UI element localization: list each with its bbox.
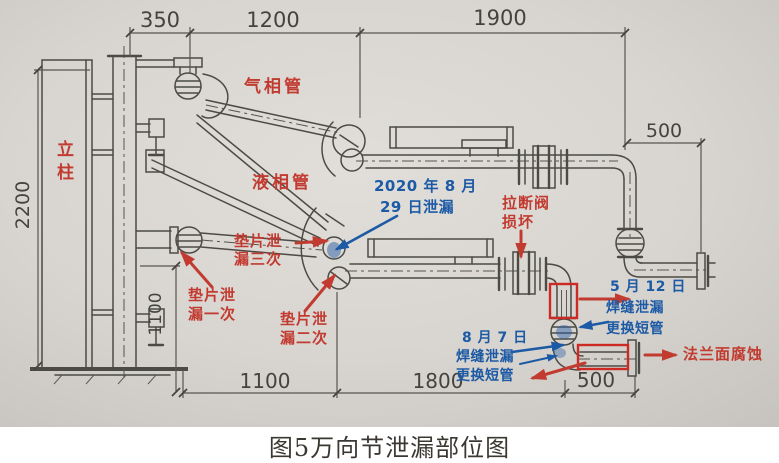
label-liquid-pipe: 液相管 [252,172,312,193]
note-gasket-leak-1x-line2: 漏一次 [188,305,236,323]
leak-spot-mark-2020 [327,242,341,258]
dim-right-500: 500 [646,120,682,142]
dim-top-1200: 1200 [246,8,299,32]
label-gas-pipe: 气相管 [243,76,304,97]
note-may12-line2: 焊缝泄漏 [606,299,664,316]
note-gasket-leak-3x-line1: 垫片泄 [234,232,282,250]
dim-top-1900: 1900 [473,6,526,30]
note-gasket-leak-2x-line2: 漏二次 [280,329,328,347]
note-may12-line1: 5 月 12 日 [610,279,686,295]
note-gasket-leak-2x-line1: 垫片泄 [280,310,328,328]
dim-bottom-500: 500 [577,368,615,392]
note-2020-leak-line2: 29 日泄漏 [380,198,454,216]
note-breakaway-valve-line2: 损坏 [502,213,534,231]
leak-spot-mark-may12 [556,325,572,339]
universal-joint-leak-diagram: 350 1200 1900 500 2200 11 [0,0,779,427]
dim-inner-1100: 1100 [146,292,166,335]
note-breakaway-valve-line1: 拉断阀 [502,194,550,212]
note-may12-line3: 更换短管 [606,320,664,337]
label-column: 立柱 [53,139,74,186]
note-2020-leak-line1: 2020 年 8 月 [374,177,477,195]
note-gasket-leak-3x-line2: 漏三次 [234,250,282,268]
note-aug7-line1: 8 月 7 日 [462,330,528,346]
note-gasket-leak-1x-line1: 垫片泄 [188,286,236,304]
note-aug7-line2: 焊缝泄漏 [456,348,514,365]
note-aug7-line3: 更换短管 [456,367,514,384]
dim-left-2200: 2200 [12,181,34,229]
dim-bottom-1100: 1100 [240,369,291,393]
diagram-photo: 350 1200 1900 500 2200 11 [0,0,779,427]
figure-page: 350 1200 1900 500 2200 11 [0,0,779,463]
arrow-gasket-leak-3x [296,241,326,243]
figure-caption: 图5万向节泄漏部位图 [269,428,510,463]
dim-top-350: 350 [140,8,180,32]
note-flange-corrosion: 法兰面腐蚀 [683,345,763,363]
caption-bar: 图5万向节泄漏部位图 [0,427,779,463]
